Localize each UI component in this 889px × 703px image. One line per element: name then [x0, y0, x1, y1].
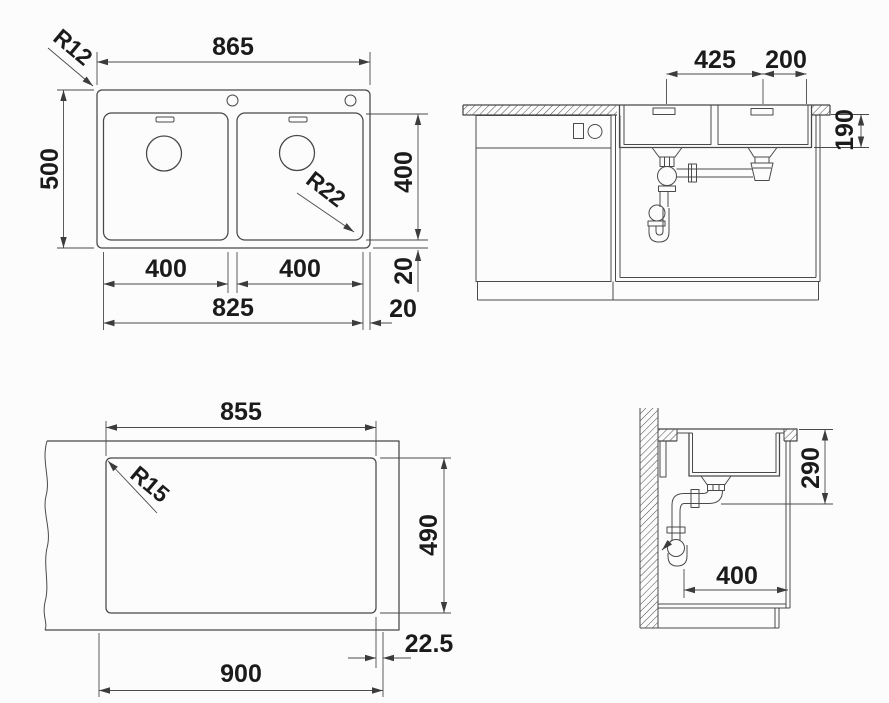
wall-hatch	[640, 408, 658, 628]
counter-hatch-back	[658, 429, 677, 441]
dim-label-depth-to-drain: 290	[797, 447, 825, 489]
technical-drawing: 865 500 R12 R22 400 20	[0, 0, 889, 703]
dim-label-bottom-gap: 20	[390, 257, 418, 285]
dim-label-edge-offset: 22.5	[405, 630, 454, 658]
drawing-canvas: 865 500 R12 R22 400 20	[0, 0, 889, 703]
dim-label-bowls-span: 825	[212, 294, 254, 322]
dim-label-left-bowl-width: 400	[145, 255, 187, 283]
dim-label-overall-sink-width: 900	[220, 660, 262, 688]
dim-label-drain-offset: 400	[716, 562, 758, 590]
counter-hatch-front	[784, 429, 797, 441]
dim-label-bowl-depth: 400	[390, 151, 418, 193]
dim-label-side-gap: 20	[389, 295, 417, 323]
dim-label-overall-depth: 500	[36, 148, 64, 190]
worktop-hatch-right	[811, 105, 830, 115]
dim-label-drain-to-edge: 200	[765, 46, 807, 74]
dim-label-cutout-depth: 490	[415, 514, 443, 556]
dim-label-cutout-width: 855	[220, 398, 262, 426]
dim-label-drain-spacing: 425	[694, 46, 736, 74]
dim-label-overall-width: 865	[212, 33, 254, 61]
dim-label-right-bowl-width: 400	[279, 255, 321, 283]
worktop-hatch-left	[463, 105, 617, 115]
dim-label-bowl-inner-depth: 190	[831, 109, 859, 151]
